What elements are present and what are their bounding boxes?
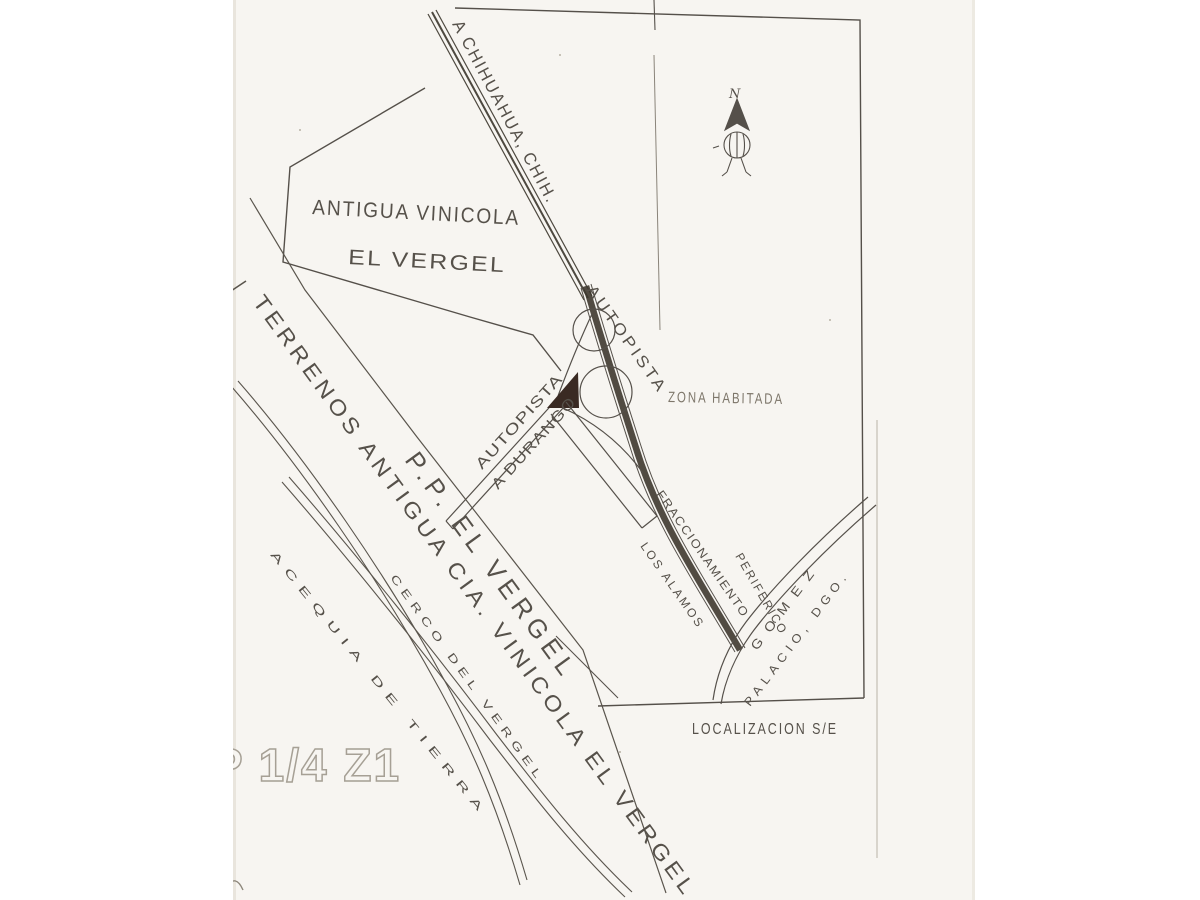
north-letter: N [728,87,741,102]
label-sheet-code: P 1/4 Z1 [212,739,401,791]
label-localizacion: LOCALIZACION S/E [692,721,838,738]
label-zona-habitada: ZONA HABITADA [668,389,784,408]
speck-3 [829,319,831,321]
map-canvas: N A CHIHUAHUA, CHIH. ANTIGUA VINICOLA EL… [0,0,1200,900]
speck-4 [619,751,621,753]
left-margin [0,0,233,900]
scanned-map-document: N A CHIHUAHUA, CHIH. ANTIGUA VINICOLA EL… [0,0,1200,900]
paper-right-edge [972,0,975,900]
speck-2 [299,129,301,131]
right-margin [975,0,1200,900]
speck-1 [559,54,561,56]
